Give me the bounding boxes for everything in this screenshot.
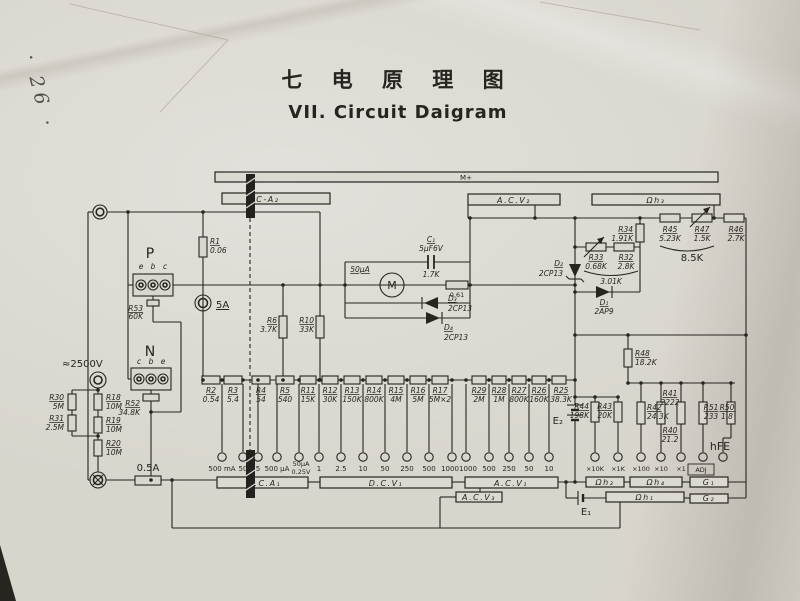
resistor-r1 [199, 237, 207, 257]
r19-name: R19 [106, 416, 121, 425]
deck-ohm1-label: Ωh₁ [635, 493, 655, 502]
r19-value: 10M [106, 425, 123, 434]
label-x10: ×10 [654, 465, 668, 473]
contact-1000v-ac [462, 453, 470, 461]
battery-e2-label: E₂ [553, 416, 563, 427]
deck-ac-v2-label: A.C.V₂ [496, 196, 531, 205]
d1-value: 2AP9 [594, 307, 613, 316]
resistor-r20 [94, 440, 102, 456]
d2-value: 2CP13 [539, 269, 563, 278]
meter-shunt-value: 0.61 [450, 291, 464, 299]
r44-value: 198K [570, 411, 590, 420]
r28-name: R28 [492, 386, 507, 395]
r29-value: 2M [473, 395, 485, 404]
circuit-diagram-figure: · 26 · 七 电 原 理 图 VII. Circuit Daigram [0, 0, 800, 601]
r10-name: R10 [299, 316, 314, 325]
meter-coil-resistance: 1.7K [423, 270, 441, 279]
resistor-r42 [637, 402, 645, 424]
resistor-r5 [276, 376, 294, 384]
r4-name: R4 [256, 386, 266, 395]
r15-value: 4M [390, 395, 402, 404]
label-10v: 10 [359, 465, 368, 473]
contact-x10k [591, 453, 599, 461]
label-500v: 500 [422, 465, 435, 473]
deck-g1-label: G₁ [703, 478, 715, 487]
resistor-r16 [410, 376, 426, 384]
resistor-r12 [322, 376, 338, 384]
r14-value: 800K [364, 395, 384, 404]
r17-value: 5M×2 [429, 395, 452, 404]
r52-name: R52 [125, 399, 140, 408]
label-x1k: ×1K [611, 465, 626, 473]
meter-range-label: 50μA [350, 265, 369, 274]
handwritten-page-number: · 26 · [19, 52, 59, 133]
hv-input-label: ≈2500V [62, 359, 103, 370]
label-500v-ac: 500 [482, 465, 495, 473]
contact-250v-ac [505, 453, 513, 461]
r14-name: R14 [367, 386, 382, 395]
resistor-r34 [636, 224, 644, 242]
capacitor-c1 [428, 255, 434, 269]
label-0p25v: 0.25V [292, 468, 311, 476]
r32-value: 2.8K [618, 262, 636, 271]
resistor-r30 [68, 394, 76, 410]
contact-x1 [677, 453, 685, 461]
r34-value: 1.91K [611, 234, 634, 243]
r50-value: 1.8 [721, 412, 733, 421]
contact-labels: 500 mA 50 5 500 μA 50μA 0.25V 1 2.5 10 5… [208, 440, 730, 476]
resistor-r6 [279, 316, 287, 338]
transistor-socket-p [133, 274, 173, 296]
contact-50ma [239, 453, 247, 461]
c1-name: C₁ [427, 235, 435, 244]
r45-value: 5.23K [659, 234, 682, 243]
r1-value: 0.06 [210, 246, 227, 255]
fuse-0p5a [135, 476, 161, 485]
resistor-r43 [614, 402, 622, 422]
r51-value: 233 [704, 412, 719, 421]
resistor-r33 [586, 243, 606, 251]
contact-2p5v [337, 453, 345, 461]
r3-name: R3 [228, 386, 238, 395]
sum-8-5k: 8.5K [681, 253, 704, 264]
label-500ma: 500 mA [208, 465, 235, 473]
r31-name: R31 [49, 414, 64, 423]
resistor-r53 [147, 300, 159, 306]
r5-value: 540 [278, 395, 293, 404]
contact-x10 [657, 453, 665, 461]
r28-value: 1M [493, 395, 505, 404]
r2-name: R2 [206, 386, 216, 395]
label-50ua: 50μA [293, 460, 310, 468]
r5-name: R5 [280, 386, 290, 395]
r25-name: R25 [554, 386, 569, 395]
diode-d1 [596, 286, 612, 298]
r48-name: R48 [635, 349, 650, 358]
socket-n-pin-e: e [161, 357, 166, 366]
label-adj: ADJ [695, 466, 706, 474]
r40-value: 21.2 [662, 435, 679, 444]
resistor-r15 [388, 376, 404, 384]
r48-value: 18.2K [635, 358, 658, 367]
title-english: VII. Circuit Daigram [288, 102, 507, 123]
r17-name: R17 [433, 386, 448, 395]
socket-p-label: P [146, 246, 154, 262]
resistor-r3 [224, 376, 242, 384]
r11-value: 15K [301, 395, 317, 404]
battery-e1-label: E₁ [581, 507, 591, 518]
contact-500ma [218, 453, 226, 461]
contact-5ma [254, 453, 262, 461]
contact-500v [425, 453, 433, 461]
r4-value: 54 [256, 395, 266, 404]
contact-500ua [273, 453, 281, 461]
deck-ohm4-label: Ωh₄ [646, 478, 666, 487]
deck-g2-label: G₂ [703, 494, 715, 503]
r46-value: 2.7K [728, 234, 746, 243]
resistor-r4 [252, 376, 270, 384]
socket-p-pin-c: c [163, 262, 168, 271]
label-2p5v: 2.5 [335, 465, 346, 473]
resistor-r13 [344, 376, 360, 384]
label-1v: 1 [317, 465, 321, 473]
r53-value: 60K [129, 312, 145, 321]
contact-500v-ac [485, 453, 493, 461]
r26-value: 160K [529, 395, 549, 404]
label-x100: ×100 [632, 465, 650, 473]
deck-ohm2-label: Ωh₂ [595, 478, 615, 487]
deck-ac-v3-label: A.C.V₃ [461, 493, 496, 502]
r40-name: R40 [663, 426, 678, 435]
socket-p-pin-b: b [151, 262, 156, 271]
r43-name: R43 [597, 402, 612, 411]
r27-name: R27 [512, 386, 527, 395]
resistor-r26 [532, 376, 546, 384]
r41-name: R41 [663, 389, 678, 398]
r31-value: 2.5M [46, 423, 65, 432]
label-10v-ac: 10 [545, 465, 554, 473]
socket-p-pin-e: e [139, 262, 144, 271]
r6-name: R6 [267, 316, 277, 325]
r3-value: 5.4 [227, 395, 239, 404]
contact-50v [381, 453, 389, 461]
r44-name: R44 [574, 402, 589, 411]
switch-decks: M+ DC-A₂ A.C.V₂ Ωh₃ D.C.A₁ D.C.V₁ A.C.V₁… [215, 172, 728, 503]
label-250v: 250 [400, 465, 413, 473]
resistor-r10 [316, 316, 324, 338]
terminal-hv-2500v [90, 372, 106, 388]
switch-wiper-top [246, 174, 255, 218]
label-x1: ×1 [676, 465, 686, 473]
transistor-socket-n [131, 368, 171, 390]
diode-d3 [422, 297, 438, 309]
d2-name: D₂ [554, 259, 563, 268]
r41-value: 2222 [660, 398, 679, 407]
terminal-common [93, 205, 107, 219]
meter-symbol: M [387, 279, 397, 292]
r10-value: 33K [300, 325, 316, 334]
contact-50v-ac [525, 453, 533, 461]
socket-n-pin-c: c [137, 357, 142, 366]
r42-value: 24.3K [647, 412, 670, 421]
r20-value: 10M [106, 448, 123, 457]
r13-value: 150K [342, 395, 362, 404]
resistor-r18 [94, 394, 102, 410]
resistor-r17 [432, 376, 448, 384]
d1-name: D₁ [600, 298, 609, 307]
diode-d4 [426, 312, 442, 324]
r20-name: R20 [106, 439, 121, 448]
resistor-meter-shunt [446, 281, 468, 289]
contact-10v [359, 453, 367, 461]
resistor-r32 [614, 243, 634, 251]
r27-value: 800K [509, 395, 529, 404]
label-500ua: 500 μA [265, 465, 290, 473]
r15-name: R15 [389, 386, 404, 395]
c1-value: 5μF6V [419, 244, 444, 253]
label-x10k: ×10K [586, 465, 605, 473]
r45-name: R45 [663, 225, 678, 234]
sum-3-01k: 3.01K [600, 277, 623, 286]
resistor-r11 [300, 376, 316, 384]
terminal-plus [90, 472, 106, 488]
contact-x100 [637, 453, 645, 461]
d4-value: 2CP13 [444, 333, 468, 342]
resistor-r14 [366, 376, 382, 384]
r12-value: 30K [323, 395, 339, 404]
r30-name: R30 [49, 393, 64, 402]
resistor-r27 [512, 376, 526, 384]
r30-value: 5M [53, 402, 65, 411]
r51-name: R51 [704, 403, 719, 412]
socket-n-pin-b: b [149, 357, 154, 366]
r18-name: R18 [106, 393, 121, 402]
resistor-r28 [492, 376, 506, 384]
r6-value: 3.7K [260, 325, 278, 334]
deck-ohm3-label: Ωh₃ [646, 196, 666, 205]
resistor-r52 [143, 394, 159, 401]
deck-ac-v1-label: A.C.V₁ [493, 479, 528, 488]
label-hfe: hFE [710, 440, 730, 453]
label-50v-ac: 50 [525, 465, 534, 473]
resistor-r25 [552, 376, 566, 384]
r16-name: R16 [411, 386, 426, 395]
r26-name: R26 [532, 386, 547, 395]
contact-10v-ac [545, 453, 553, 461]
r47-value: 1.5K [694, 234, 712, 243]
resistor-symbols [68, 207, 744, 456]
resistor-r46 [724, 214, 744, 222]
r33-value: 0.68K [585, 262, 608, 271]
bus-m-plus-label: M+ [460, 174, 472, 182]
deck-dc-v1-label: D.C.V₁ [369, 479, 404, 488]
title-chinese: 七 电 原 理 图 [281, 68, 514, 92]
r16-value: 5M [412, 395, 424, 404]
r1-name: R1 [210, 237, 220, 246]
d4-name: D₄ [444, 323, 453, 332]
resistor-r48 [624, 349, 632, 367]
label-1000v-dc: 1000 [441, 465, 459, 473]
r2-value: 0.54 [203, 395, 220, 404]
resistor-r31 [68, 415, 76, 431]
resistor-r19 [94, 417, 102, 433]
r32-name: R32 [619, 253, 634, 262]
r13-name: R13 [345, 386, 360, 395]
fuse-5a-label: 5A [216, 300, 229, 311]
r25-value: 38.3K [550, 395, 573, 404]
contact-1v [315, 453, 323, 461]
r12-name: R12 [323, 386, 338, 395]
label-5ma: 5 [256, 465, 260, 473]
label-250v-ac: 250 [502, 465, 515, 473]
r47-name: R47 [695, 225, 710, 234]
label-50v: 50 [381, 465, 390, 473]
contact-250v [403, 453, 411, 461]
d3-value: 2CP13 [448, 304, 472, 313]
diode-d2-zener [566, 264, 584, 282]
r46-name: R46 [729, 225, 744, 234]
r33-name: R33 [589, 253, 604, 262]
scanned-page: · 26 · 七 电 原 理 图 VII. Circuit Daigram [0, 0, 800, 601]
contact-adj [699, 453, 707, 461]
battery-e1 [578, 491, 583, 505]
label-50ma: 50 [239, 465, 248, 473]
contact-1000v-dc [448, 453, 456, 461]
resistor-r45 [660, 214, 680, 222]
r34-name: R34 [618, 225, 633, 234]
r29-name: R29 [472, 386, 487, 395]
resistor-r29 [472, 376, 486, 384]
label-1000v-ac: 1000 [459, 465, 477, 473]
contact-x1k [614, 453, 622, 461]
contact-hfe [719, 453, 727, 461]
r43-value: 20K [598, 411, 614, 420]
fuse-0p5a-label: 0.5A [137, 463, 160, 474]
r52-value: 34.8K [118, 408, 141, 417]
r11-name: R11 [301, 386, 316, 395]
r50-name: R50 [720, 403, 735, 412]
